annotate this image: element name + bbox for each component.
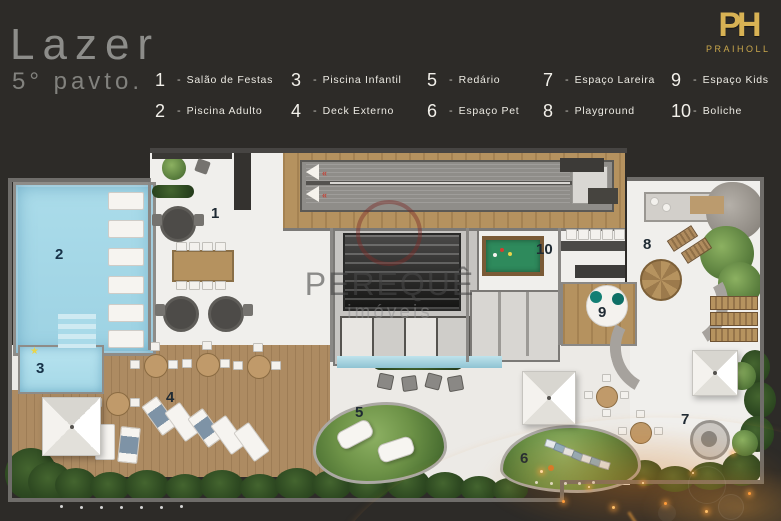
billiard-ball (508, 252, 512, 256)
watermark-tagline: imóveis (300, 302, 480, 324)
legend-item-5: 5-Redário (427, 70, 519, 90)
wood-lounger (710, 312, 758, 326)
deck-chair (130, 398, 140, 407)
planter-cube (401, 375, 418, 392)
legend-number: 2 (155, 101, 175, 122)
deck-chair (220, 359, 230, 368)
kitchen-counter (561, 241, 625, 251)
in-pool-lounger (108, 330, 144, 348)
patio-chair (602, 409, 611, 417)
legend-number: 3 (291, 70, 311, 91)
plan-marker-9: 9 (598, 304, 606, 321)
dining-chair (189, 281, 200, 290)
legend-number: 6 (427, 101, 447, 122)
bar-stool (578, 229, 589, 240)
round-table (163, 296, 199, 332)
legend-separator: - (313, 74, 317, 86)
legend-label: Salão de Festas (187, 74, 273, 86)
legend-number: 4 (291, 101, 311, 122)
patio-parasol (522, 371, 576, 425)
bowling-lane (306, 164, 570, 181)
left-wall (8, 178, 12, 502)
legend-separator: - (449, 105, 453, 117)
legend-label: Playground (575, 105, 635, 117)
bar-stool (614, 229, 625, 240)
wood-lounger (710, 328, 758, 342)
deck-chair (233, 361, 243, 370)
bowling-lane (306, 186, 570, 203)
legend-separator: - (313, 105, 317, 117)
legend-separator: - (177, 74, 181, 86)
deck-chair (253, 343, 263, 352)
interior-wall (558, 228, 561, 345)
wood-lounger (710, 296, 758, 310)
planter-cube (447, 375, 464, 392)
bar-stool (602, 229, 613, 240)
legend-number: 9 (671, 70, 691, 91)
floor-subtitle: 5° pavto. (12, 68, 143, 96)
page-title: Lazer (10, 20, 160, 70)
legend-separator: - (177, 105, 181, 117)
pool-steps (58, 314, 96, 348)
deck-umbrella (42, 397, 101, 456)
deck-table (196, 353, 220, 377)
legend-number: 5 (427, 70, 447, 91)
dining-chair (215, 242, 226, 251)
dining-chair (176, 281, 187, 290)
patio-table (596, 386, 618, 408)
plan-marker-4: 4 (166, 389, 174, 406)
brand-monogram: PH (706, 8, 770, 42)
kitchen-appliances (575, 265, 625, 278)
round-table (160, 206, 196, 242)
deck-chair (182, 359, 192, 368)
deck-chair (130, 360, 140, 369)
lane-arrow-icon: « (322, 190, 327, 200)
legend-separator: - (693, 105, 697, 117)
round-play-platform (640, 259, 682, 301)
dining-chair (155, 304, 165, 316)
ball-return-rail (330, 182, 570, 184)
beanbag (612, 293, 624, 305)
legend-item-3: 3-Piscina Infantil (291, 70, 402, 90)
billiard-ball (493, 253, 497, 257)
legend-separator: - (449, 74, 453, 86)
dining-chair (202, 281, 213, 290)
dining-chair (152, 214, 162, 226)
play-structure-deck (690, 196, 724, 214)
legend-column-4: 7-Espaço Lareira 8-Playground (543, 70, 655, 121)
restroom-stall (342, 318, 372, 358)
deck-table (247, 355, 271, 379)
edge-light (180, 505, 183, 508)
sun-lounger (117, 426, 141, 464)
legend-label: Espaço Lareira (575, 74, 655, 86)
floorplan-poster: Lazer 5° pavto. 1-Salão de Festas 2-Pisc… (0, 0, 781, 521)
legend-number: 1 (155, 70, 175, 91)
bowling-pins (306, 164, 319, 180)
restroom-stall (374, 318, 404, 358)
edge-light (140, 506, 143, 509)
top-wall (150, 148, 627, 153)
in-pool-lounger (108, 304, 144, 322)
room-divider (498, 292, 501, 356)
deck-chair (168, 360, 178, 369)
in-pool-lounger (108, 248, 144, 266)
patio-parasol (692, 350, 738, 396)
deck-table (144, 354, 168, 378)
legend-label: Redário (459, 74, 501, 86)
dining-chair (194, 214, 204, 226)
legend-column-2: 3-Piscina Infantil 4-Deck Externo (291, 70, 402, 121)
long-dining-table (172, 250, 234, 282)
lane-arrow-icon: « (322, 168, 327, 178)
in-pool-lounger (108, 220, 144, 238)
edge-light (60, 505, 63, 508)
play-seat (650, 197, 659, 206)
legend-number: 7 (543, 70, 563, 91)
legend-label: Deck Externo (323, 105, 394, 117)
in-pool-lounger (108, 276, 144, 294)
plan-marker-8: 8 (643, 236, 651, 253)
flare-glow (640, 468, 781, 521)
legend-number: 8 (543, 101, 563, 122)
legend-item-9: 9-Espaço Kids (671, 70, 769, 90)
plan-marker-2: 2 (55, 246, 63, 263)
restroom-stall (438, 318, 468, 358)
plan-marker-10: 10 (536, 241, 553, 258)
room-divider (526, 292, 529, 356)
right-top-wall (627, 177, 764, 181)
legend-number: 10 (671, 101, 691, 122)
bowling-sofa (588, 188, 618, 204)
legend-item-4: 4-Deck Externo (291, 101, 402, 121)
legend-column-5: 9-Espaço Kids 10-Boliche (671, 70, 769, 121)
deck-chair (202, 341, 212, 350)
dining-chair (202, 242, 213, 251)
bar-stool (566, 229, 577, 240)
legend-item-1: 1-Salão de Festas (155, 70, 273, 90)
bowling-sofa (560, 158, 604, 172)
glass-canopy-edge (337, 356, 502, 368)
watermark-ring-icon (356, 200, 422, 266)
watermark-name: PEREQUÊ (300, 266, 480, 303)
legend-item-2: 2-Piscina Adulto (155, 101, 273, 121)
vegetation-blob (425, 472, 465, 500)
edge-light (120, 506, 123, 509)
edge-light (80, 506, 83, 509)
deck-table (106, 392, 130, 416)
bar-stool (590, 229, 601, 240)
legend-separator: - (565, 105, 569, 117)
billiard-ball (500, 248, 504, 252)
indoor-plant (162, 156, 186, 180)
planter-hedge (152, 185, 194, 198)
pool-star-marker: ★ (30, 346, 39, 357)
beanbag (590, 291, 602, 303)
patio-chair (636, 410, 645, 418)
brand-name: PRAIHOLL (706, 44, 770, 54)
legend-item-10: 10-Boliche (671, 101, 769, 121)
legend-label: Piscina Infantil (323, 74, 402, 86)
dining-chair (189, 242, 200, 251)
plan-marker-5: 5 (355, 404, 363, 421)
pool-top-wall (10, 178, 150, 182)
legend-item-7: 7-Espaço Lareira (543, 70, 655, 90)
pool-hall-wall (148, 178, 151, 350)
brand-logo: PH PRAIHOLL (706, 8, 770, 54)
dining-chair (176, 242, 187, 251)
legend-column-1: 1-Salão de Festas 2-Piscina Adulto (155, 70, 273, 121)
legend-label: Espaço Kids (703, 74, 769, 86)
patio-chair (584, 391, 593, 399)
support-rooms (470, 290, 560, 362)
legend-item-8: 8-Playground (543, 101, 655, 121)
plan-marker-1: 1 (211, 205, 219, 222)
legend-separator: - (693, 74, 697, 86)
legend-label: Espaço Pet (459, 105, 520, 117)
legend-label: Piscina Adulto (187, 105, 263, 117)
edge-light (100, 506, 103, 509)
in-pool-lounger (108, 192, 144, 210)
legend-separator: - (565, 74, 569, 86)
patio-chair (602, 374, 611, 382)
bowling-pins (306, 186, 319, 202)
dining-chair (243, 304, 253, 316)
legend-item-6: 6-Espaço Pet (427, 101, 519, 121)
legend-label: Boliche (703, 105, 742, 117)
deck-chair (150, 342, 160, 351)
restroom-stall (406, 318, 436, 358)
planter-cube (377, 373, 395, 391)
deck-chair (271, 361, 281, 370)
plan-marker-3: 3 (36, 360, 44, 377)
legend-column-3: 5-Redário 6-Espaço Pet (427, 70, 519, 121)
edge-light (160, 506, 163, 509)
dining-chair (215, 281, 226, 290)
pool-table (482, 236, 544, 276)
bar-counter (234, 152, 251, 210)
round-table (208, 296, 244, 332)
play-seat (662, 203, 671, 212)
patio-chair (620, 391, 629, 399)
